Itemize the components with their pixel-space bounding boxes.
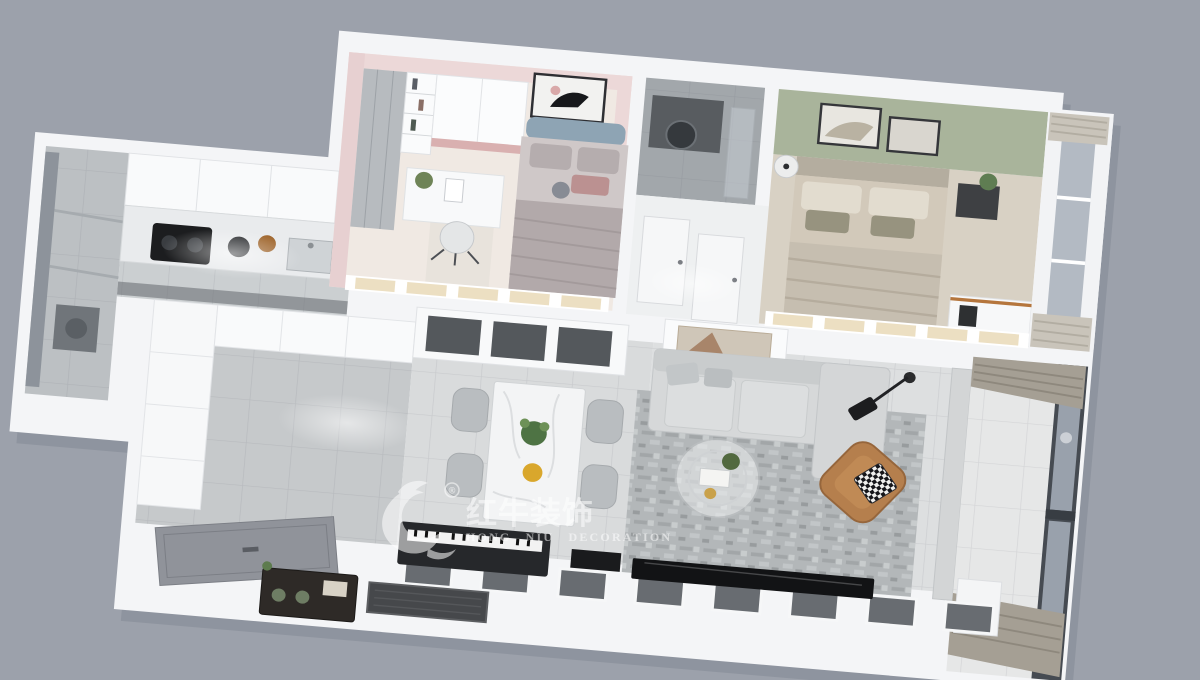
dining-chair [585, 399, 624, 445]
bathroom [636, 78, 765, 205]
accent-pillow [571, 174, 610, 196]
floorplan-svg: ® 红牛装饰 HONG NIU DECORATION [0, 0, 1200, 680]
pillow [801, 181, 863, 214]
book [410, 119, 416, 131]
kids-bedroom [329, 52, 634, 313]
pillow [529, 143, 573, 171]
smoked-glass-door [425, 316, 482, 356]
accent-pillow [870, 215, 915, 239]
dining-chair [450, 387, 489, 433]
desk-card [444, 178, 464, 202]
pillow [868, 187, 930, 220]
accent-pillow [805, 209, 850, 233]
watermark-brand-cn: 红牛装饰 [466, 496, 594, 532]
wall-inset-panel [558, 569, 608, 601]
speaker [958, 305, 978, 327]
entry-foyer [135, 300, 425, 546]
sofa-pillow [704, 367, 733, 388]
smoked-glass-door [556, 327, 613, 367]
radio-dial [323, 580, 348, 597]
wall-inset-panel [944, 602, 994, 634]
books [699, 468, 730, 487]
master-bedroom [759, 89, 1114, 354]
sofa-pillow [665, 362, 699, 386]
kitchen [117, 153, 359, 316]
smoked-glass-door [491, 321, 548, 361]
watermark-brand-en: HONG NIU DECORATION [466, 530, 672, 544]
framed-picture [887, 117, 939, 155]
door-handle [242, 547, 258, 553]
book [412, 78, 418, 90]
sofa-cushion [737, 380, 809, 438]
book [418, 99, 424, 111]
pillow [576, 147, 620, 175]
registered-mark: ® [448, 487, 457, 497]
hallway [626, 195, 769, 325]
wall-inset-panel [867, 595, 917, 627]
floorplan-render: ® 红牛装饰 HONG NIU DECORATION [0, 0, 1200, 680]
